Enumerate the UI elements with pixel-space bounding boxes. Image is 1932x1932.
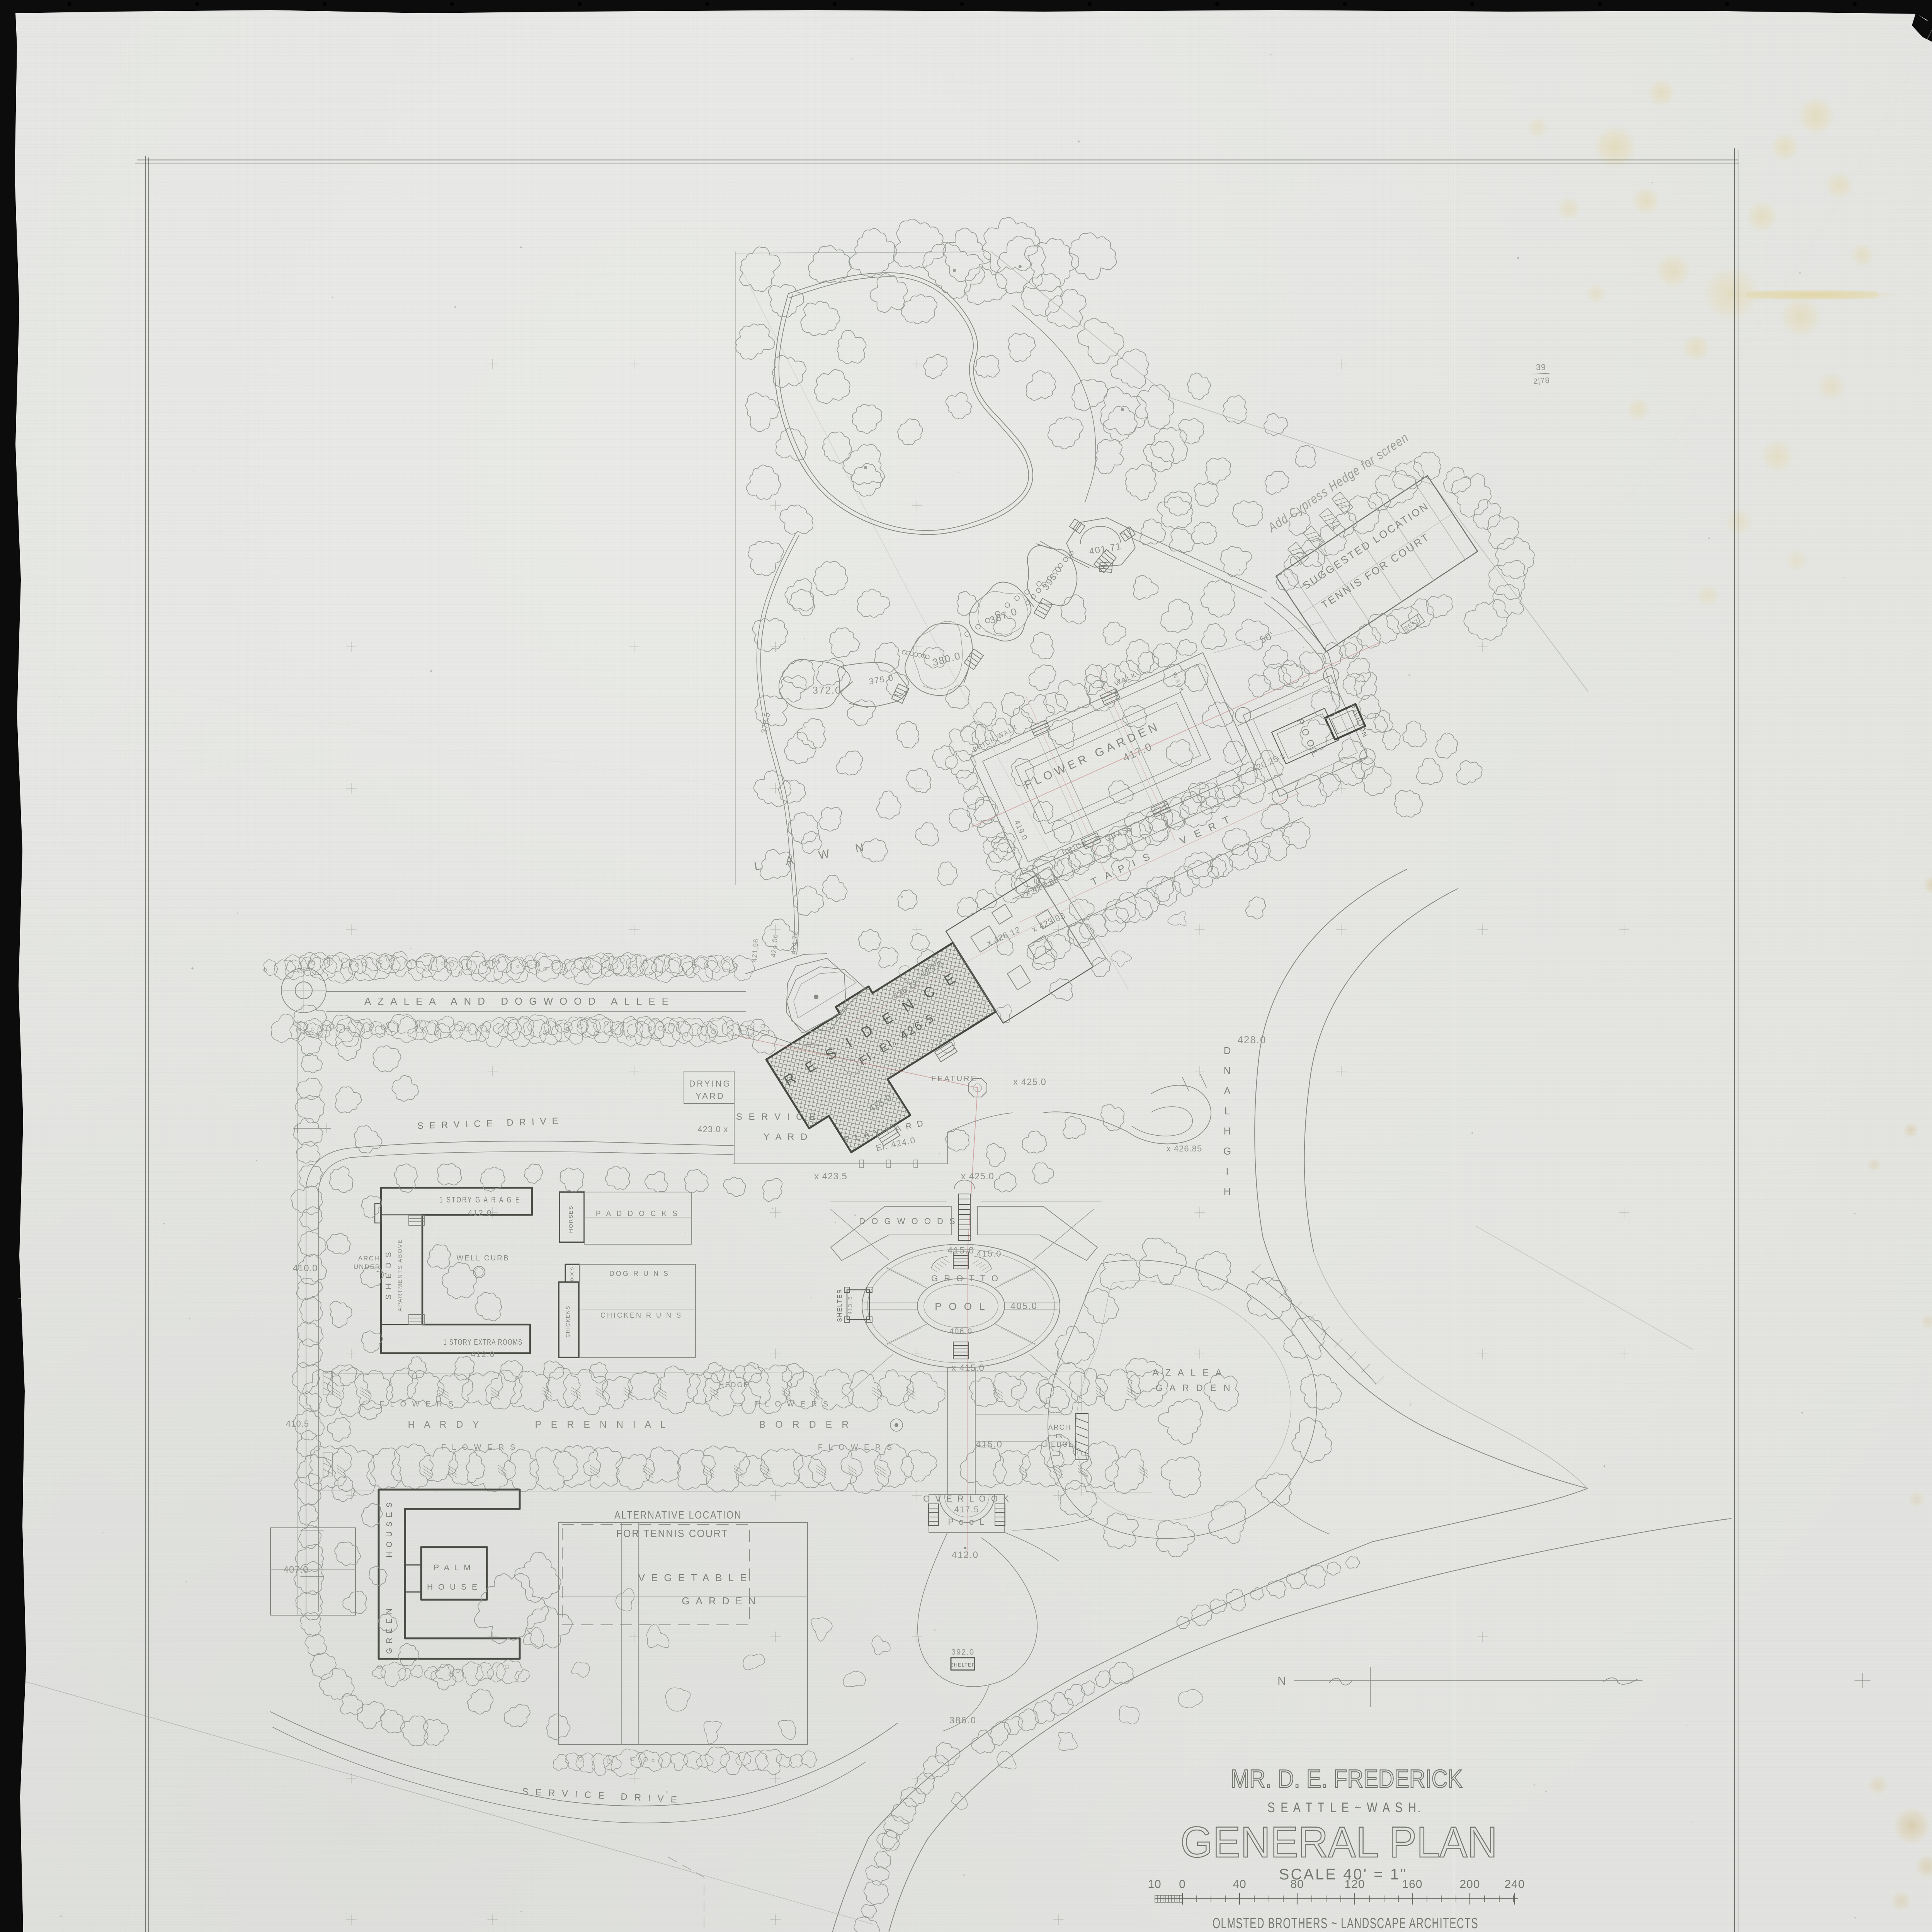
svg-text:P O O L: P O O L: [935, 1301, 987, 1312]
svg-text:x 426.85: x 426.85: [1167, 1144, 1202, 1153]
svg-text:F L O W E R S: F L O W E R S: [754, 1400, 830, 1408]
svg-text:I: I: [1226, 1165, 1228, 1177]
svg-text:386.0: 386.0: [949, 1715, 976, 1726]
svg-text:413. 5: 413. 5: [847, 1296, 854, 1315]
svg-text:GARDEN: GARDEN: [682, 1595, 762, 1607]
svg-text:x 423.5: x 423.5: [814, 1171, 847, 1182]
svg-text:10: 10: [1148, 1878, 1161, 1891]
svg-text:MR. D. E. FREDERICK: MR. D. E. FREDERICK: [1231, 1764, 1463, 1793]
svg-text:1 STORY EXTRA ROOMS: 1 STORY EXTRA ROOMS: [444, 1338, 523, 1347]
svg-text:CHICKENS: CHICKENS: [565, 1305, 571, 1337]
svg-text:F L O W E R S: F L O W E R S: [818, 1443, 894, 1452]
svg-text:0: 0: [1179, 1878, 1186, 1891]
svg-text:415.0: 415.0: [947, 1245, 975, 1256]
svg-text:D O G W O O D S: D O G W O O D S: [859, 1216, 957, 1226]
svg-text:80: 80: [1290, 1878, 1304, 1891]
svg-text:ARCH: ARCH: [358, 1255, 380, 1262]
svg-text:L: L: [1225, 1105, 1230, 1117]
svg-text:1 STORY G A R A G E: 1 STORY G A R A G E: [439, 1196, 520, 1204]
svg-text:FOR TENNIS COURT: FOR TENNIS COURT: [616, 1527, 728, 1539]
svg-text:372.0: 372.0: [812, 684, 841, 696]
svg-text:OLMSTED BROTHERS ~ LANDSCAPE: OLMSTED BROTHERS ~ LANDSCAPE ARCHITECTS: [1213, 1915, 1478, 1932]
svg-text:DRYING: DRYING: [689, 1079, 731, 1088]
svg-text:160: 160: [1402, 1878, 1422, 1891]
svg-text:VEGETABLE: VEGETABLE: [638, 1572, 753, 1583]
svg-text:Y A R D: Y A R D: [764, 1132, 810, 1142]
svg-text:407.0: 407.0: [283, 1565, 308, 1575]
svg-text:H: H: [1224, 1125, 1231, 1137]
svg-text:S E R V I C E: S E R V I C E: [736, 1112, 817, 1122]
svg-text:ARCH: ARCH: [1048, 1423, 1071, 1431]
svg-text:412.0: 412.0: [468, 1209, 492, 1218]
svg-text:2|78: 2|78: [1533, 376, 1550, 386]
svg-text:428.0: 428.0: [1237, 1034, 1266, 1046]
svg-text:N: N: [1224, 1065, 1231, 1077]
svg-text:P o o L: P o o L: [948, 1517, 985, 1527]
svg-text:APARTMENTS ABOVE: APARTMENTS ABOVE: [397, 1239, 403, 1311]
svg-text:40: 40: [1233, 1878, 1246, 1891]
svg-text:x 415.0: x 415.0: [951, 1363, 985, 1373]
svg-text:P E R E N N I A L: P E R E N N I A L: [535, 1419, 669, 1430]
svg-text:412.0: 412.0: [471, 1350, 495, 1359]
svg-text:P A D D O C K S: P A D D O C K S: [596, 1210, 679, 1218]
svg-text:H O U S E: H O U S E: [427, 1583, 479, 1592]
svg-text:WELL CURB: WELL CURB: [456, 1254, 509, 1262]
svg-text:G R O T T O: G R O T T O: [931, 1274, 1000, 1283]
svg-text:HORSES: HORSES: [568, 1205, 574, 1233]
svg-text:D: D: [1224, 1045, 1231, 1056]
svg-text:200: 200: [1459, 1878, 1480, 1891]
svg-text:240: 240: [1504, 1878, 1525, 1891]
svg-text:DOGS: DOGS: [570, 1267, 575, 1281]
svg-text:410.5: 410.5: [286, 1419, 309, 1429]
svg-text:H O U S E S: H O U S E S: [385, 1501, 394, 1557]
svg-text:423.0 x: 423.0 x: [697, 1124, 728, 1134]
svg-text:G A R D E N: G A R D E N: [1155, 1383, 1232, 1393]
svg-text:S E A T T L E ~ W A S H.: S E A T T L E ~ W A S H.: [1267, 1799, 1422, 1815]
svg-text:120: 120: [1344, 1878, 1365, 1891]
svg-text:SHELTER: SHELTER: [837, 1289, 843, 1322]
svg-text:H A R D Y: H A R D Y: [408, 1419, 482, 1430]
svg-text:ALTERNATIVE LOCATION: ALTERNATIVE LOCATION: [614, 1509, 742, 1521]
svg-text:YARD: YARD: [696, 1091, 725, 1101]
svg-text:UNDER: UNDER: [354, 1263, 381, 1270]
svg-text:N: N: [1277, 1675, 1286, 1687]
svg-text:410.0: 410.0: [293, 1263, 318, 1274]
svg-text:S H E D S: S H E D S: [384, 1250, 393, 1299]
svg-text:AZALEA AND DOGWOOD: AZALEA AND DOGWOOD ALLEE: [364, 995, 675, 1007]
svg-text:x 425.0: x 425.0: [1013, 1077, 1046, 1087]
svg-text:H: H: [1224, 1185, 1231, 1197]
svg-text:O V E R L O O K: O V E R L O O K: [923, 1494, 1010, 1503]
svg-text:412.0: 412.0: [952, 1550, 979, 1560]
svg-text:406.0: 406.0: [949, 1327, 973, 1336]
svg-text:G: G: [1223, 1145, 1231, 1157]
svg-text:415.0: 415.0: [976, 1439, 1003, 1450]
svg-text:DOG R U N S: DOG R U N S: [609, 1270, 670, 1277]
svg-text:405.0: 405.0: [1010, 1301, 1037, 1311]
svg-text:B O R D E R: B O R D E R: [759, 1419, 852, 1430]
svg-text:F L O W E R S: F L O W E R S: [441, 1443, 517, 1452]
svg-text:F L O W E R S: F L O W E R S: [379, 1400, 456, 1408]
svg-text:GENERAL PLAN: GENERAL PLAN: [1180, 1818, 1497, 1866]
svg-text:P A L M: P A L M: [434, 1563, 472, 1572]
svg-text:415.0: 415.0: [976, 1249, 1002, 1259]
svg-text:CHICKEN R U N S: CHICKEN R U N S: [600, 1311, 682, 1319]
svg-text:392.0: 392.0: [951, 1648, 975, 1656]
svg-text:FEATURE: FEATURE: [931, 1075, 978, 1083]
svg-text:SHELTER: SHELTER: [950, 1662, 976, 1668]
svg-text:39: 39: [1536, 362, 1546, 372]
svg-text:A: A: [1224, 1085, 1231, 1097]
svg-text:BROOKLINE, MASS. — MARCH: BROOKLINE, MASS. — MARCH 15, 1930: [1229, 1930, 1455, 1932]
svg-text:417.5: 417.5: [954, 1505, 979, 1514]
